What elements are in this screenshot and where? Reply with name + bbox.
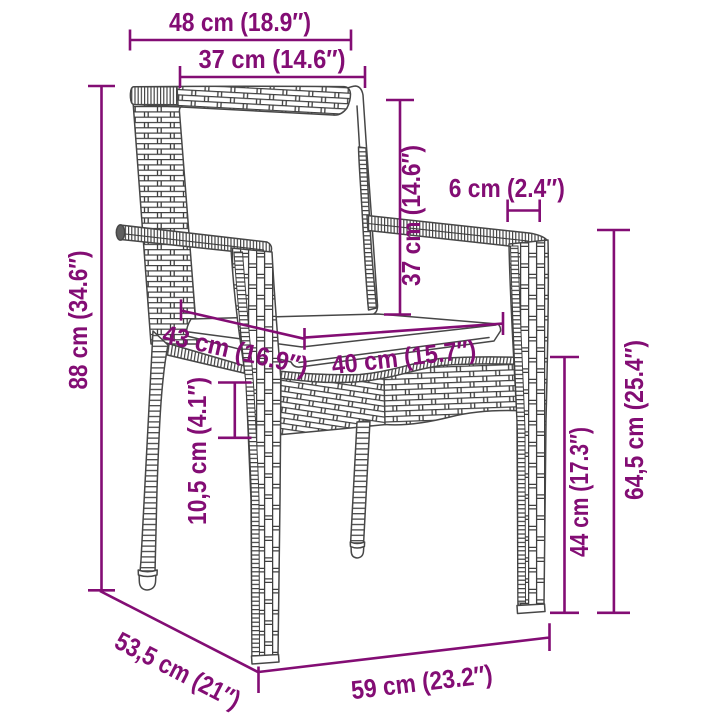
svg-text:53,5 cm (21″): 53,5 cm (21″)	[110, 626, 246, 715]
svg-text:59 cm (23.2″): 59 cm (23.2″)	[350, 659, 495, 705]
svg-text:88 cm (34.6″): 88 cm (34.6″)	[63, 251, 93, 390]
svg-text:10,5 cm (4.1″): 10,5 cm (4.1″)	[182, 377, 212, 525]
svg-text:6 cm (2.4″): 6 cm (2.4″)	[449, 173, 565, 203]
svg-text:48 cm (18.9″): 48 cm (18.9″)	[169, 7, 311, 37]
svg-text:37 cm (14.6″): 37 cm (14.6″)	[199, 44, 346, 74]
svg-text:44 cm (17.3″): 44 cm (17.3″)	[564, 427, 594, 557]
svg-text:37 cm (14.6″): 37 cm (14.6″)	[396, 145, 426, 286]
svg-text:64,5 cm (25.4″): 64,5 cm (25.4″)	[619, 340, 649, 500]
